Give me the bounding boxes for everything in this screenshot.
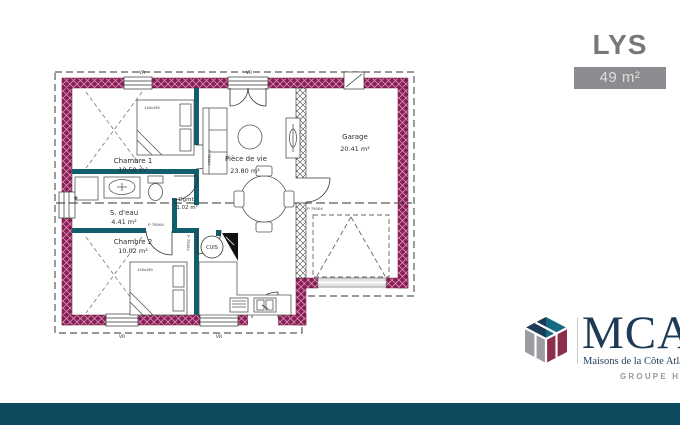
footer-bar [0, 403, 680, 425]
door-ref-2: P 75004 [148, 222, 164, 227]
fridge-symbol [222, 233, 238, 261]
brand-tagline: Maisons de la Côte Atlantique [583, 356, 680, 367]
bed-size-2: 140x190 [137, 268, 152, 272]
area-piece-de-vie: 23.80 m² [230, 167, 260, 175]
garage-door [313, 215, 389, 287]
area-sdeau: 4.41 m² [111, 218, 137, 226]
garage-divider-wall [296, 88, 306, 278]
logo-divider [577, 318, 578, 364]
toilet [148, 176, 163, 201]
brand-logo: MCA Maisons de la Côte Atlantique GROUPE… [520, 308, 680, 388]
vr-label-bottom-1: VR [119, 334, 125, 340]
area-chambre1: 10.59 m² [118, 166, 148, 174]
bathroom-sink [104, 177, 140, 198]
area-chambre2: 10.02 m² [118, 247, 148, 255]
label-chambre2: Chambre 2 [114, 238, 153, 246]
kitchen-counter [199, 262, 291, 315]
vr-label-top-1: VR [139, 70, 145, 76]
side-table [238, 125, 262, 149]
area-badge: 49 m² [574, 67, 666, 89]
bed-size-1: 140x190 [144, 106, 159, 110]
door-ref-1: P 75004 [207, 150, 212, 166]
label-dgmt: Dgmt [178, 197, 194, 203]
mca-cube-icon [522, 316, 570, 364]
door-ref-4: P 75004 [307, 206, 323, 211]
door-ref-3: P 75004 [186, 235, 191, 251]
area-dgmt: 1.02 m² [176, 204, 198, 211]
sofa [203, 108, 227, 174]
label-cuisine: CUIS [206, 245, 218, 251]
brand-group: GROUPE HEXAOM [620, 372, 680, 381]
title-block: LYS 49 m² [574, 30, 666, 89]
label-chambre1: Chambre 1 [114, 157, 153, 165]
model-name: LYS [574, 30, 666, 61]
label-sdeau: S. d'eau [110, 209, 138, 217]
label-garage: Garage [342, 133, 368, 141]
label-piece-de-vie: Pièce de vie [225, 155, 267, 163]
dining-table [234, 166, 294, 232]
console-table [286, 118, 300, 158]
washing-machine [74, 177, 98, 200]
brand-acronym: MCA [582, 308, 680, 360]
area-garage: 20.41 m² [340, 145, 370, 153]
vr-label-top-2: VR [246, 70, 252, 76]
vr-label-bottom-2: VR [216, 334, 222, 340]
